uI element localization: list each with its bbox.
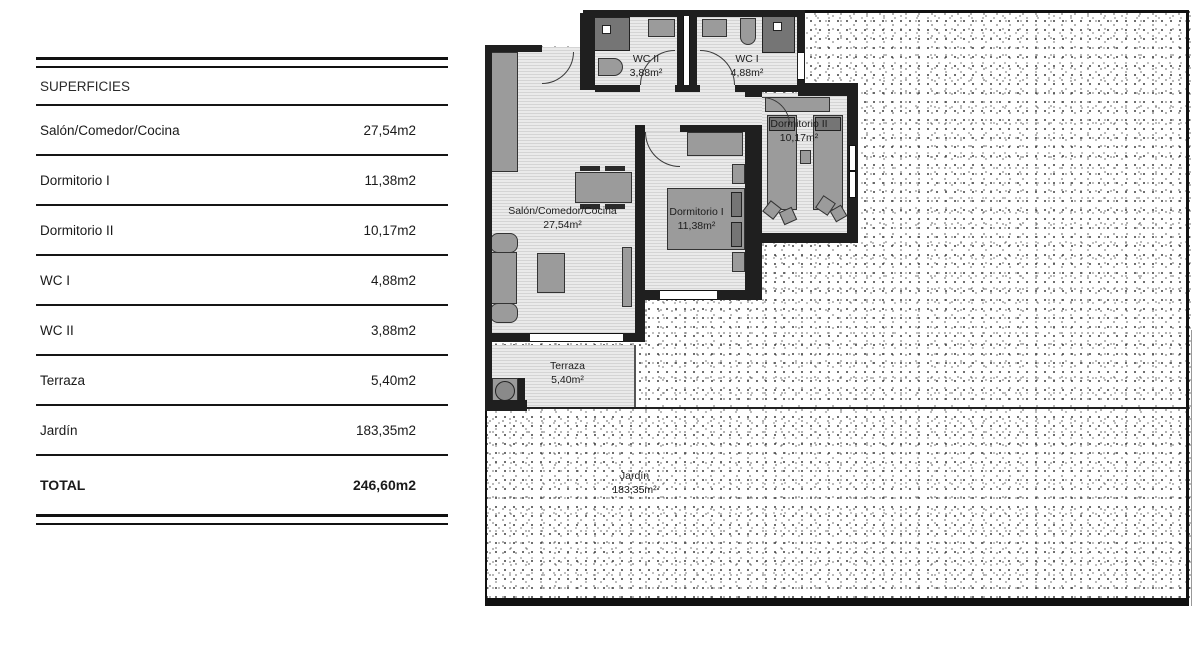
wall-between-dorms [745,125,762,300]
table-bottom-line-2 [36,523,448,526]
total-label: TOTAL [36,477,85,493]
row-value: 11,38m2 [364,173,448,188]
room-area: 27,54m² [490,219,635,233]
table-row: WC II 3,88m2 [36,306,448,356]
room-label-wc1: WC I 4,88m² [697,53,797,80]
wall-terrace-left [485,342,492,404]
sink-wc1 [702,19,727,37]
wall-salon-right [635,125,645,342]
tv-sideboard [622,247,632,307]
room-label-terraza: Terraza 5,40m² [515,360,620,387]
wall-between-dorms [745,92,762,97]
row-value: 27,54m2 [363,123,448,138]
plot-boundary-left [485,411,487,598]
room-name: Dormitorio I [648,206,745,220]
shower-drain-wc2 [602,25,611,34]
shower-wc2 [593,17,630,51]
surfaces-table: SUPERFICIES Salón/Comedor/Cocina 27,54m2… [36,57,448,525]
table-total-row: TOTAL 246,60m2 [36,456,448,514]
washing-machine-drum [495,381,515,401]
plot-boundary-bottom [485,598,1189,606]
wall-wc-bottom [595,85,640,92]
row-value: 183,35m2 [356,423,448,438]
floor-plan: Salón/Comedor/Cocina 27,54m² Dormitorio … [485,0,1194,614]
sink-wc2 [648,19,675,37]
sliding-door-terrace [530,333,623,342]
row-label: Dormitorio I [36,173,110,188]
row-label: Jardín [36,423,78,438]
plot-boundary-top [800,10,1188,13]
wall-salon-left [485,45,492,342]
plot-boundary-right [1186,10,1189,606]
plot-boundary-right-shadow [1191,330,1192,606]
wall-dorm1-bottom [717,290,762,300]
dining-chair [580,166,600,171]
row-label: Salón/Comedor/Cocina [36,123,180,138]
wall-dorm2-bottom [755,233,858,243]
wall-dorm1-bottom [640,290,660,300]
wall-terrace-corner [485,400,527,411]
room-label-jardin: Jardín 183,35m² [577,470,692,497]
room-area: 4,88m² [697,67,797,81]
total-value: 246,60m2 [353,477,448,493]
room-name: WC I [697,53,797,67]
entry-white-mask [485,0,583,45]
wall-salon-bottom [485,333,530,342]
row-label: WC II [36,323,74,338]
room-area: 3,88m² [600,67,692,81]
room-name: Terraza [515,360,620,374]
room-name: Jardín [577,470,692,484]
coffee-table [537,253,565,293]
dresser-dorm1 [687,132,743,156]
row-value: 5,40m2 [371,373,448,388]
table-row: Dormitorio I 11,38m2 [36,156,448,206]
room-label-dorm1: Dormitorio I 11,38m² [648,206,745,233]
wall-wc2-left [580,13,595,90]
room-name: Salón/Comedor/Cocina [490,205,635,219]
table-header: SUPERFICIES [36,68,448,106]
row-label: Terraza [36,373,85,388]
room-area: 5,40m² [515,374,620,388]
row-value: 3,88m2 [371,323,448,338]
table-row: Salón/Comedor/Cocina 27,54m2 [36,106,448,156]
window-wc1 [798,52,804,80]
wall-wc-bottom [675,85,700,92]
room-name: WC II [600,53,692,67]
room-area: 10,17m² [755,132,843,146]
room-area: 11,38m² [648,220,745,234]
nightstand-dorm2 [800,150,811,164]
wall-salon-top [485,45,542,52]
row-value: 4,88m2 [371,273,448,288]
window-dorm2-mullion [849,170,856,172]
wall-dorm1-top [680,125,745,132]
nightstand-dorm1 [732,164,745,184]
room-label-dorm2: Dormitorio II 10,17m² [755,118,843,145]
row-label: WC I [36,273,70,288]
table-row: Dormitorio II 10,17m2 [36,206,448,256]
window-dorm1 [660,290,717,300]
table-row: Jardín 183,35m2 [36,406,448,456]
table-row: Terraza 5,40m2 [36,356,448,406]
dining-table [575,172,632,203]
kitchen-counter [490,52,518,172]
toilet-wc1 [740,18,756,45]
row-label: Dormitorio II [36,223,114,238]
shower-wc1 [762,15,795,53]
shower-drain-wc1 [773,22,782,31]
sofa-armrest-top [490,233,518,253]
garden-divider-line [487,407,1187,409]
row-value: 10,17m2 [363,223,448,238]
wall-wc-bottom [735,85,805,92]
room-label-wc2: WC II 3,88m² [600,53,692,80]
room-label-salon: Salón/Comedor/Cocina 27,54m² [490,205,635,232]
dining-chair [605,166,625,171]
sofa-seat [491,252,517,304]
room-area: 183,35m² [577,484,692,498]
sofa-armrest-bottom [490,303,518,323]
terrace-right-edge [634,345,636,407]
room-name: Dormitorio II [755,118,843,132]
table-row: WC I 4,88m2 [36,256,448,306]
nightstand-dorm1 [732,252,745,272]
wall-salon-bottom [623,333,645,342]
